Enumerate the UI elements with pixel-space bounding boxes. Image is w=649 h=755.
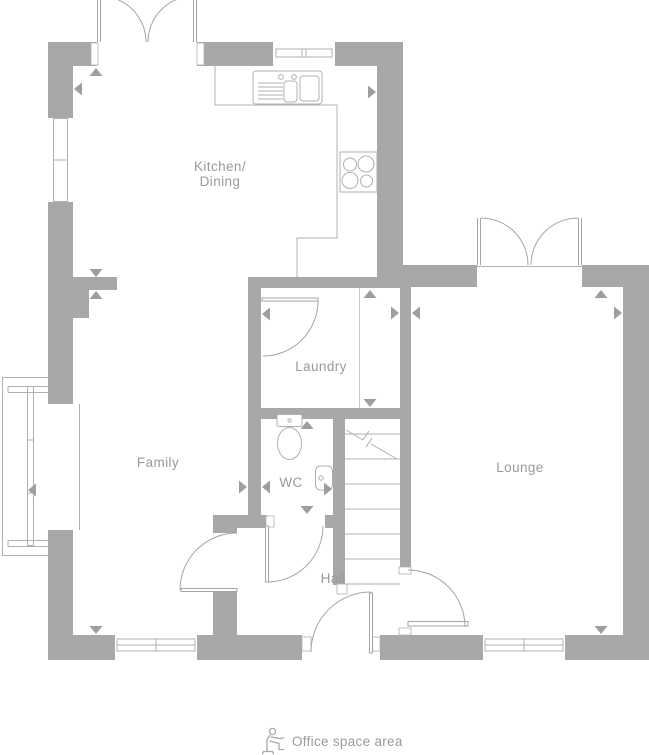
dim-arrow-left bbox=[74, 83, 82, 96]
staircase bbox=[337, 430, 400, 594]
room-label-laundry: Laundry bbox=[295, 359, 347, 374]
dim-arrow-left bbox=[262, 308, 270, 321]
wall-bottom-a bbox=[48, 635, 115, 660]
lounge-french-doors bbox=[477, 218, 582, 267]
dim-arrow-right bbox=[368, 86, 376, 99]
dim-arrow-down bbox=[301, 506, 314, 514]
wall-kitchen-right bbox=[377, 66, 403, 288]
wall-left-c bbox=[48, 530, 73, 635]
toilet bbox=[277, 415, 302, 460]
wall-family-stub-h bbox=[73, 277, 117, 290]
wall-bottom-b bbox=[197, 635, 302, 660]
floor-plan: Kitchen/ Dining Family Laundry WC Lounge… bbox=[0, 0, 649, 755]
lounge-bottom-window bbox=[483, 635, 565, 658]
dim-arrow-left bbox=[262, 481, 270, 494]
wall-laundry-top bbox=[248, 277, 411, 288]
wc-door bbox=[266, 516, 324, 582]
dim-arrow-down bbox=[595, 626, 608, 634]
family-bottom-window bbox=[115, 635, 197, 658]
laundry-door bbox=[262, 298, 318, 356]
dim-arrow-right bbox=[239, 481, 247, 494]
dim-arrow-up bbox=[90, 291, 103, 299]
wall-family-hall-upper bbox=[213, 528, 237, 533]
wall-right bbox=[623, 287, 649, 635]
kitchen-sink bbox=[253, 71, 322, 104]
room-label-kitchen-line2: Dining bbox=[200, 174, 241, 189]
room-label-lounge: Lounge bbox=[496, 460, 543, 475]
dim-arrow-left bbox=[412, 307, 420, 320]
wall-laundry-bottom bbox=[248, 408, 411, 419]
dim-arrow-up bbox=[595, 290, 608, 298]
person-at-desk-icon bbox=[263, 728, 284, 754]
front-door bbox=[302, 592, 380, 653]
room-label-kitchen-line1: Kitchen/ bbox=[194, 159, 246, 174]
wall-top-a bbox=[48, 42, 97, 66]
wall-family-hall-lower bbox=[213, 590, 237, 635]
dimension-arrows bbox=[28, 68, 622, 634]
dim-arrow-right bbox=[391, 307, 399, 320]
wall-wc-bottom-left bbox=[213, 515, 267, 528]
dim-arrow-down bbox=[90, 269, 103, 277]
floor-plan-drawing: Kitchen/ Dining Family Laundry WC Lounge… bbox=[0, 0, 649, 755]
legend: Office space area bbox=[263, 728, 403, 754]
walls bbox=[48, 42, 649, 660]
hob bbox=[340, 152, 377, 192]
wall-bottom-c bbox=[380, 635, 483, 660]
dim-arrow-right bbox=[614, 307, 622, 320]
wall-wc-stairs bbox=[333, 419, 345, 585]
wall-top-b bbox=[197, 42, 273, 66]
wall-family-stub-v bbox=[73, 290, 89, 318]
wall-lounge-top-right bbox=[582, 265, 649, 287]
kitchen-french-doors bbox=[91, 0, 204, 65]
wall-left-a bbox=[48, 66, 73, 118]
wall-left-b bbox=[48, 202, 73, 404]
hall-lounge-door bbox=[399, 567, 468, 635]
kitchen-top-window bbox=[273, 42, 335, 66]
kitchen-left-window bbox=[48, 118, 73, 202]
windows bbox=[3, 42, 566, 658]
room-label-hall: Hall bbox=[321, 571, 346, 586]
wall-lounge-top-left bbox=[400, 265, 477, 287]
wall-family-wc bbox=[248, 288, 261, 515]
dim-arrow-down bbox=[90, 626, 103, 634]
dim-arrow-up bbox=[90, 68, 103, 76]
wall-bottom-d bbox=[565, 635, 649, 660]
room-label-wc: WC bbox=[279, 475, 302, 490]
family-hall-door bbox=[180, 533, 237, 592]
room-label-family: Family bbox=[137, 455, 179, 470]
legend-label: Office space area bbox=[292, 734, 403, 749]
dim-arrow-down bbox=[364, 399, 377, 407]
wall-hall-lounge bbox=[400, 288, 411, 567]
dim-arrow-left bbox=[28, 484, 36, 497]
wall-top-c bbox=[335, 42, 403, 66]
dim-arrow-up bbox=[364, 290, 377, 298]
